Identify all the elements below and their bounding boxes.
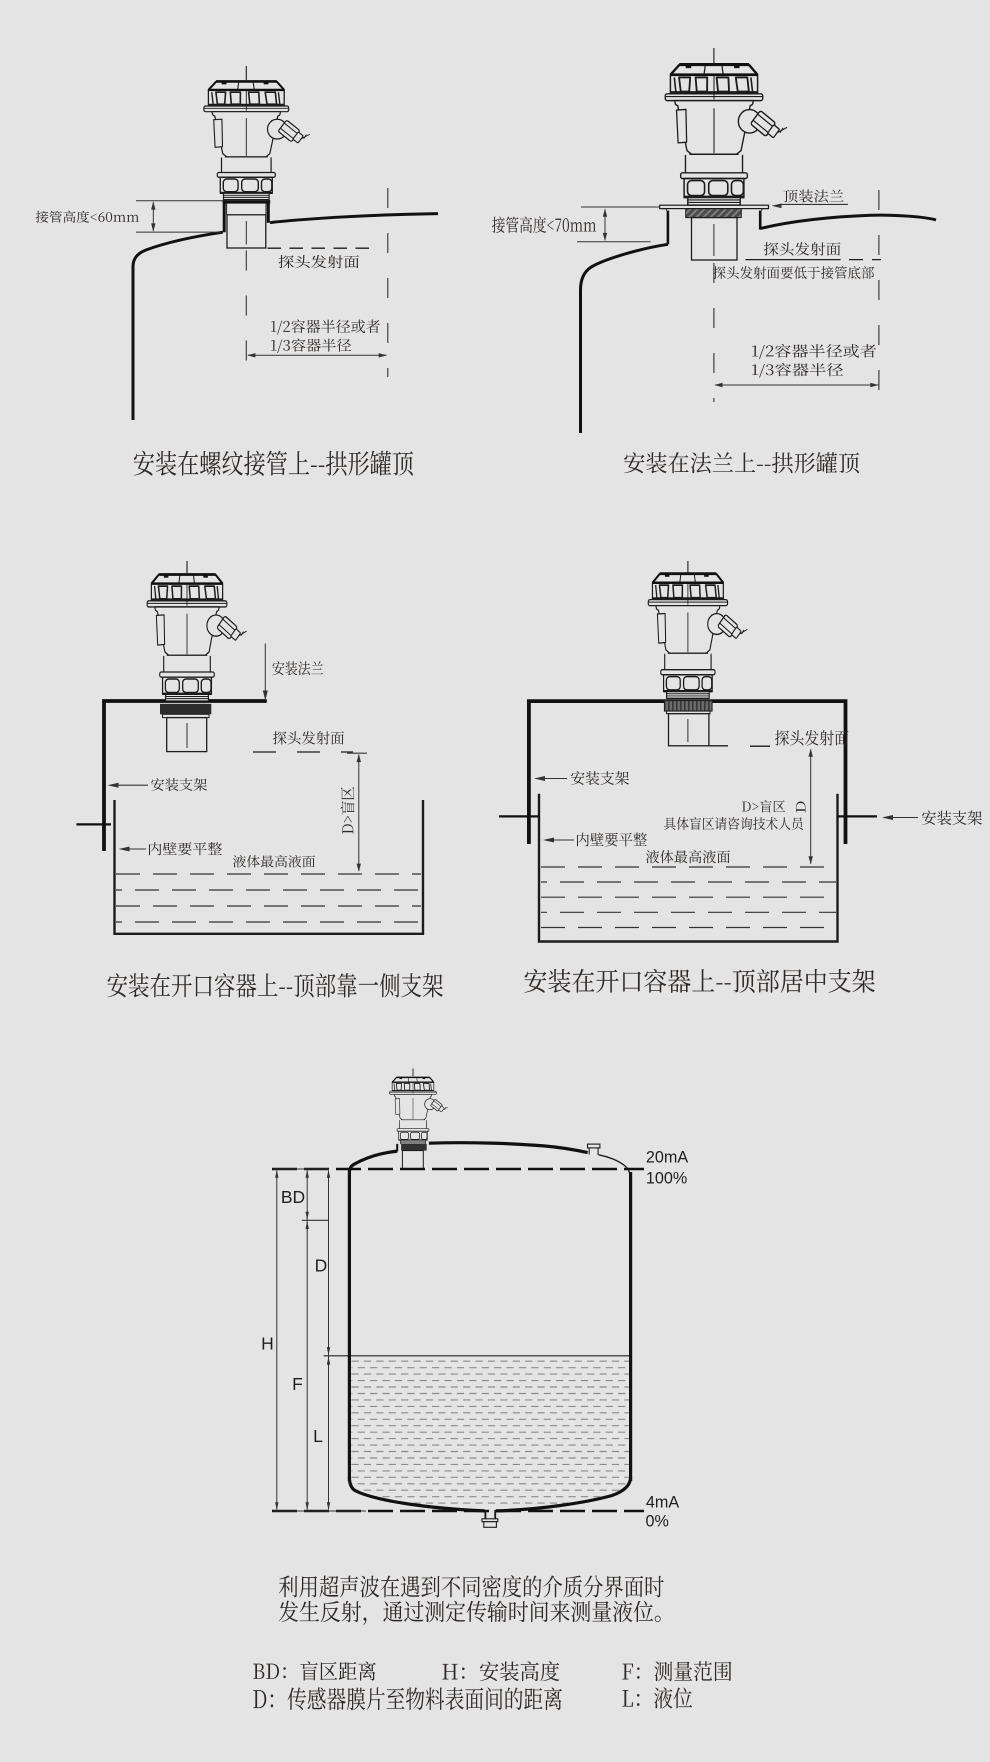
svg-text:20mA: 20mA bbox=[646, 1148, 688, 1166]
svg-text:100%: 100% bbox=[646, 1170, 687, 1188]
svg-text:H: H bbox=[261, 1334, 274, 1354]
svg-text:F: F bbox=[292, 1374, 303, 1394]
svg-text:BD: BD bbox=[281, 1187, 305, 1207]
svg-text:0%: 0% bbox=[646, 1513, 669, 1531]
svg-text:D: D bbox=[315, 1256, 328, 1276]
svg-text:4mA: 4mA bbox=[646, 1493, 679, 1511]
svg-text:L: L bbox=[313, 1426, 323, 1446]
